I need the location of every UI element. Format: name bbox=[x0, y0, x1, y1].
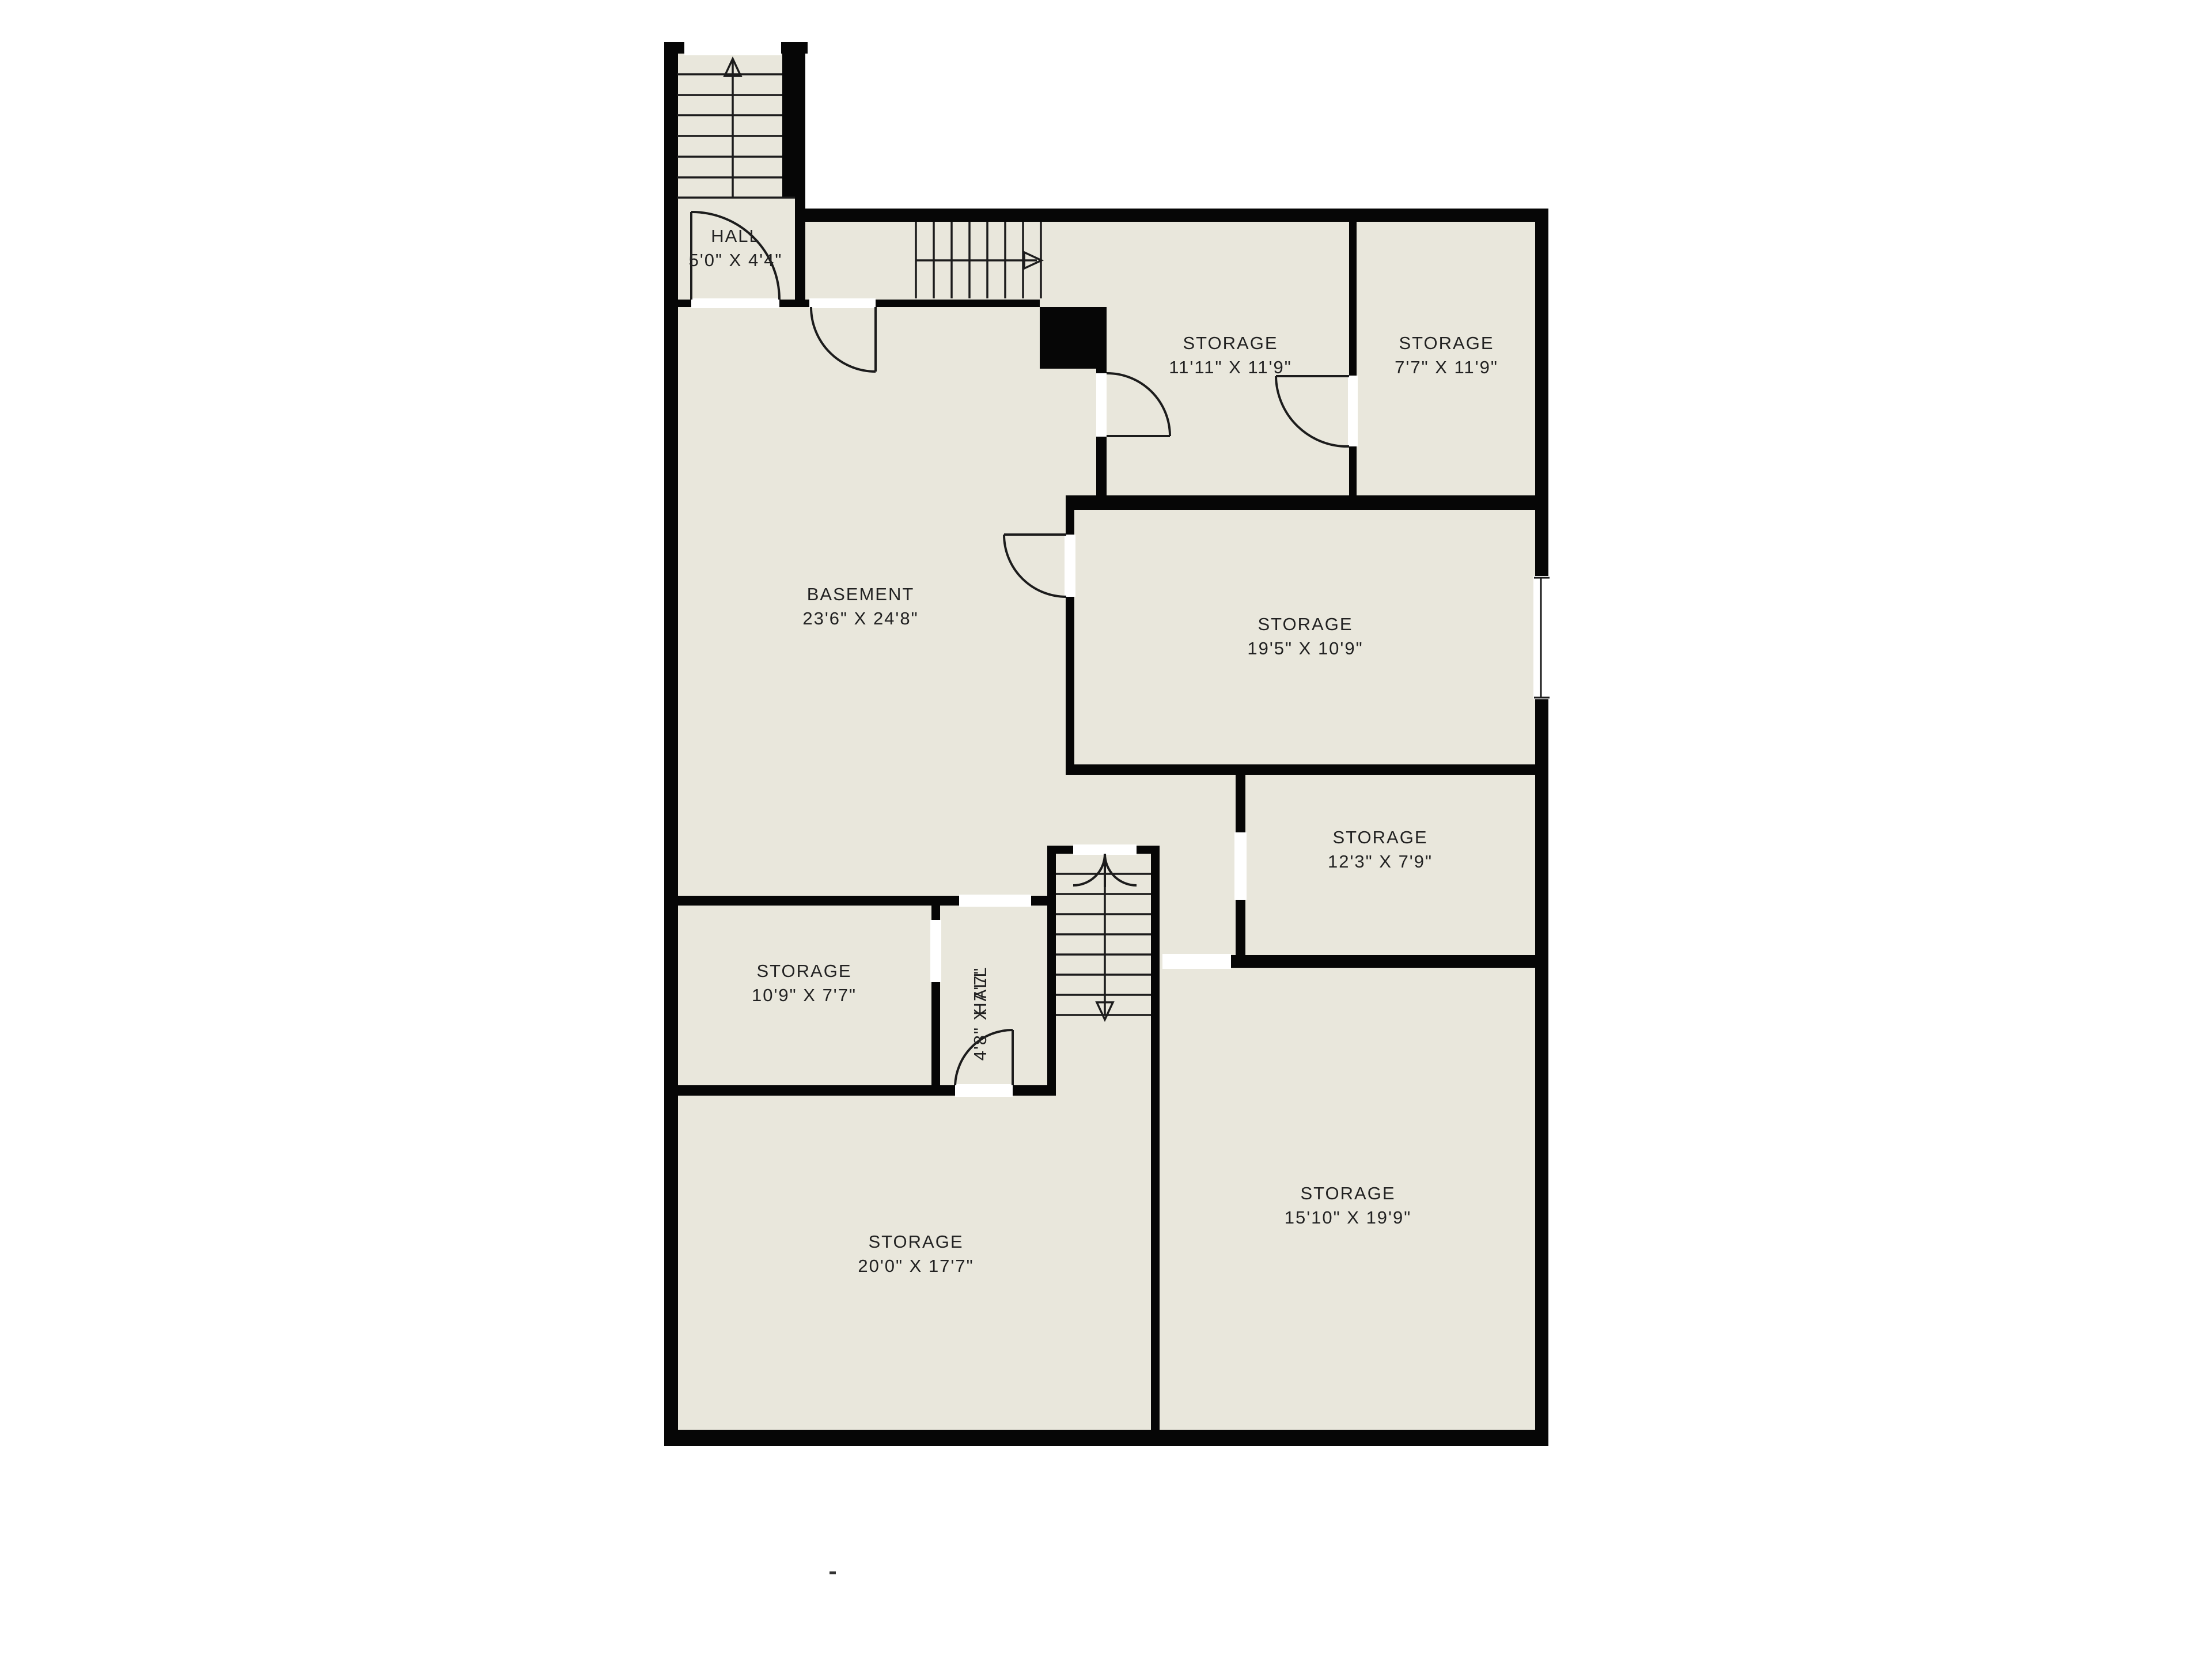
wall-segment bbox=[1535, 209, 1548, 578]
door-opening bbox=[1065, 535, 1075, 597]
wall-segment bbox=[1066, 510, 1074, 535]
wall-segment bbox=[664, 42, 678, 1446]
room-label: STORAGE bbox=[1300, 1183, 1395, 1203]
room-dimensions: 4'8" X 7'7" bbox=[970, 967, 990, 1061]
door-opening bbox=[809, 298, 876, 308]
wall-segment bbox=[779, 300, 809, 307]
door-opening bbox=[1096, 373, 1107, 437]
door-opening bbox=[1348, 376, 1358, 446]
wall-segment bbox=[1236, 900, 1245, 955]
wall-segment bbox=[1137, 846, 1160, 854]
plan-mark-dash bbox=[829, 1571, 836, 1574]
room-dimensions: 12'3" X 7'9" bbox=[1328, 851, 1433, 872]
wall-segment bbox=[1031, 896, 1056, 906]
wall-segment bbox=[664, 1430, 1548, 1446]
wall-segment bbox=[931, 982, 940, 1085]
wall-segment bbox=[876, 300, 1040, 307]
wall-segment bbox=[1013, 1085, 1056, 1096]
room-dimensions: 5'0" X 4'4" bbox=[689, 250, 783, 270]
plan-mark bbox=[829, 1571, 836, 1574]
wall-segment bbox=[802, 209, 1548, 222]
wall-segment bbox=[1047, 846, 1056, 1096]
wall-segment bbox=[782, 54, 805, 198]
wall-segment bbox=[664, 42, 684, 54]
door-opening bbox=[955, 1084, 1013, 1097]
door-opening bbox=[1073, 844, 1137, 855]
wall-segment bbox=[1066, 597, 1074, 764]
wall-segment bbox=[1231, 955, 1548, 968]
room-dimensions: 11'11" X 11'9" bbox=[1169, 357, 1292, 377]
room-dimensions: 7'7" X 11'9" bbox=[1395, 357, 1498, 377]
wall-segment bbox=[664, 300, 691, 307]
room-dimensions: 19'5" X 10'9" bbox=[1247, 638, 1363, 658]
room-label: STORAGE bbox=[1332, 827, 1427, 847]
floor-plan: HALL5'0" X 4'4"STORAGE11'11" X 11'9"STOR… bbox=[0, 0, 2212, 1659]
wall-segment bbox=[1047, 846, 1073, 854]
door-opening bbox=[930, 920, 941, 982]
room-dimensions: 20'0" X 17'7" bbox=[858, 1256, 974, 1276]
door-opening bbox=[684, 40, 781, 55]
wall-segment bbox=[664, 1085, 955, 1096]
room-dimensions: 15'10" X 19'9" bbox=[1285, 1207, 1411, 1228]
room-label: STORAGE bbox=[1257, 614, 1353, 634]
wall-segment bbox=[1096, 307, 1107, 373]
wall-segment bbox=[1151, 846, 1160, 1430]
room-label: STORAGE bbox=[1183, 333, 1278, 353]
wall-segment bbox=[1066, 764, 1548, 775]
room-label: STORAGE bbox=[868, 1232, 963, 1252]
room-label: STORAGE bbox=[756, 961, 851, 981]
room-label: STORAGE bbox=[1399, 333, 1494, 353]
room-dimensions: 10'9" X 7'7" bbox=[752, 985, 857, 1005]
door-opening bbox=[1234, 832, 1247, 900]
wall-segment bbox=[664, 896, 940, 906]
floor-area bbox=[802, 221, 1536, 308]
room-label: HALL bbox=[711, 226, 760, 246]
door-opening bbox=[691, 298, 779, 308]
wall-segment bbox=[1236, 775, 1245, 832]
wall-segment bbox=[940, 896, 959, 906]
wall-segment bbox=[1535, 698, 1548, 1446]
wall-segment bbox=[781, 42, 808, 54]
wall-segment bbox=[1096, 437, 1107, 510]
room-label: BASEMENT bbox=[807, 584, 915, 604]
room-dimensions: 23'6" X 24'8" bbox=[802, 608, 918, 628]
wall-segment bbox=[1349, 446, 1357, 495]
wall-segment bbox=[931, 906, 940, 920]
wall-segment bbox=[1349, 222, 1357, 376]
door-opening bbox=[1162, 954, 1231, 969]
door-opening bbox=[959, 895, 1031, 907]
wall-segment bbox=[1066, 495, 1548, 510]
